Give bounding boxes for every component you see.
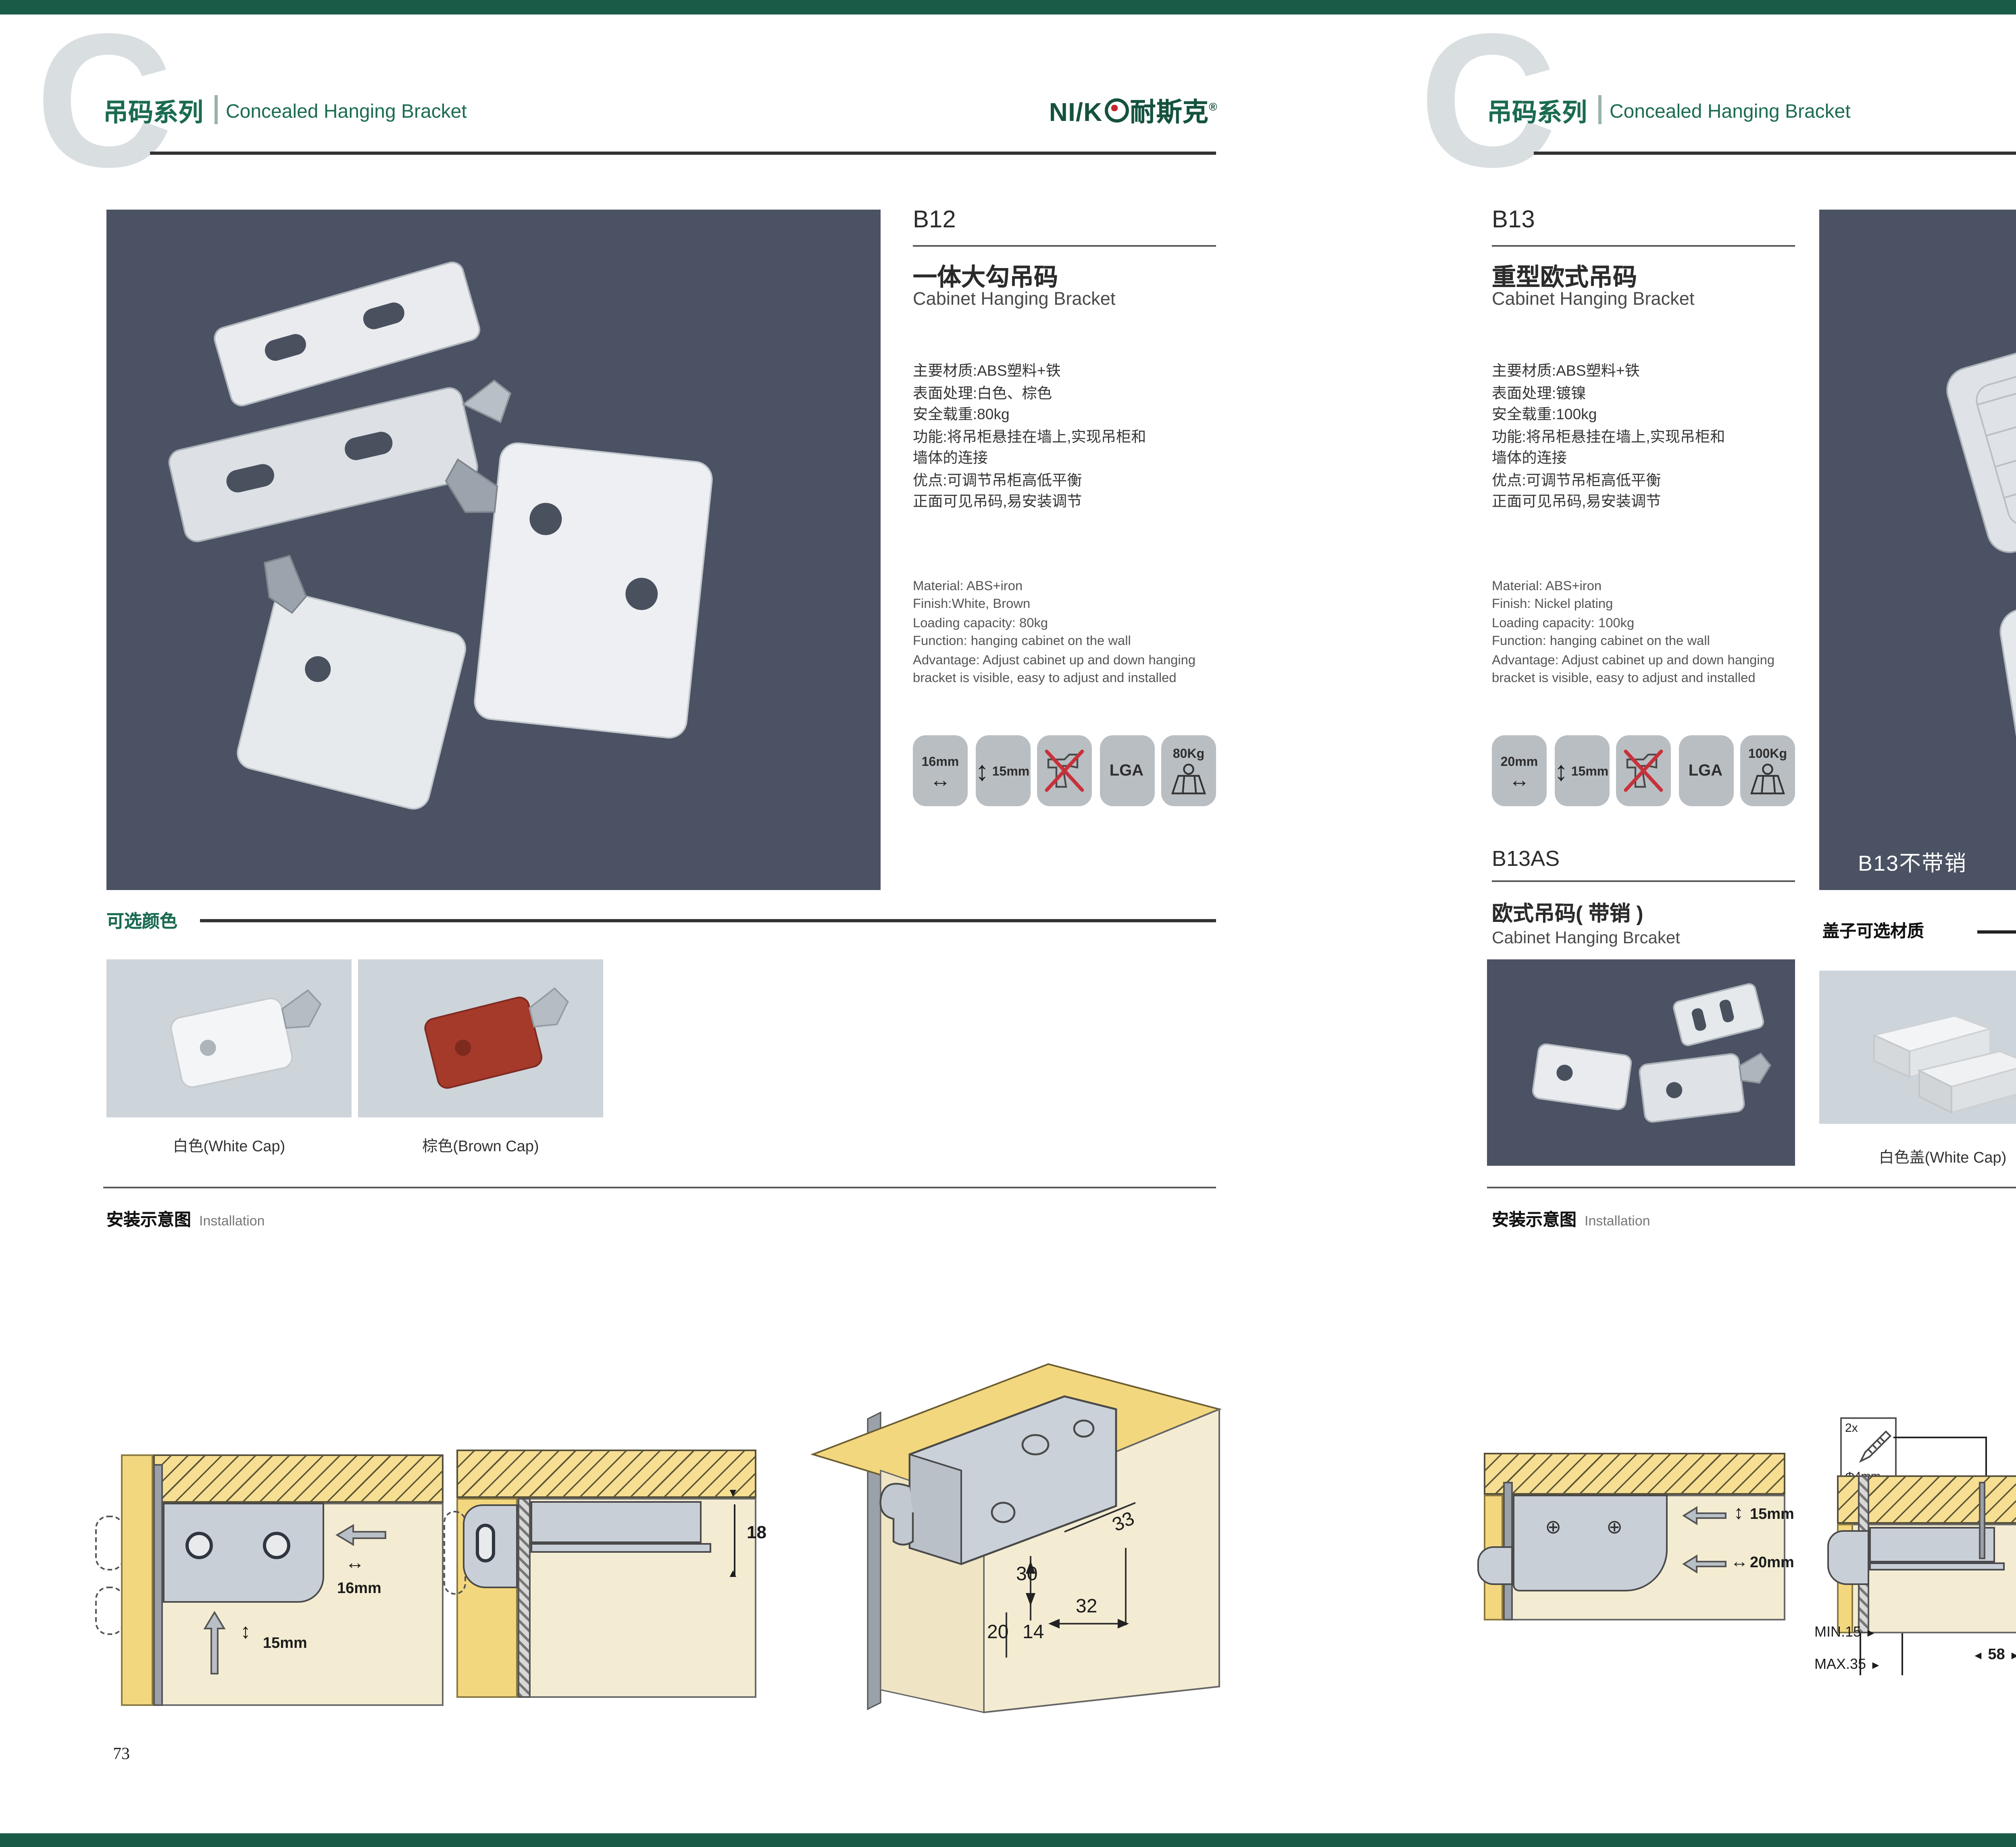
dim-15mm: 15mm	[1750, 1506, 1794, 1524]
hook-slot	[476, 1524, 495, 1562]
dim-line	[1901, 1633, 1903, 1675]
spec-line: bracket is visible, easy to adjust and i…	[1492, 669, 1814, 688]
dashed-hook-outline	[95, 1516, 124, 1570]
spec-line: 表面处理:白色、棕色	[913, 383, 1227, 405]
spec-line: 墙体的连接	[1492, 448, 1806, 470]
arrow-up-icon: ▲	[727, 1569, 739, 1580]
load-weight-icon	[1166, 763, 1211, 795]
brand-logo-left: NI/K耐斯克®	[968, 90, 1218, 129]
vertical-arrow-icon: ↕	[1554, 762, 1568, 780]
spec-line: 墙体的连接	[913, 448, 1227, 470]
product-name-cn-b12: 一体大勾吊码	[913, 260, 1058, 293]
dim-32: 32	[1076, 1595, 1097, 1617]
caption-brown-cap: 棕色(Brown Cap)	[358, 1134, 603, 1156]
diagram-section-screws: 2x Φ4mm ▼ ▲ 18 MIN.15 ► MAX.35 ► ◄ 58 ►	[1837, 1404, 2016, 1680]
product-name-en-b13as: Cabinet Hanging Brcaket	[1492, 929, 1680, 948]
horizontal-arrow-icon: ↔	[345, 1551, 364, 1574]
diagram-cabinet-3d-left: 33 30 32 20 14	[810, 1354, 1224, 1717]
vertical-arrow-icon: ↕	[1734, 1501, 1743, 1524]
install-title-cn: 安装示意图	[106, 1211, 191, 1230]
colors-rule	[200, 919, 1216, 922]
spec-line: Material: ABS+iron	[1492, 577, 1814, 596]
drill-bit-icon	[202, 1609, 227, 1677]
diagram-bracket-front: ⊕ ⊕ ↕ 15mm ↔ 20mm	[1484, 1453, 1798, 1620]
code-rule-b13	[1492, 245, 1795, 248]
header-divider-right	[1598, 95, 1601, 124]
rail-bar-shape	[1869, 1527, 1995, 1562]
spec-line: Function: hanging cabinet on the wall	[1492, 632, 1814, 651]
load-weight-icon	[1745, 763, 1790, 795]
screw-icon: ⊕	[1606, 1517, 1622, 1537]
cabinet-top-hatched	[456, 1450, 756, 1498]
rail-bar-shape	[531, 1501, 702, 1543]
diagram-wall-mount-2: ▼ ▲ 18	[456, 1440, 779, 1708]
series-title-en-left: Concealed Hanging Bracket	[226, 100, 467, 123]
arrow-right-icon: ►	[2009, 1651, 2016, 1662]
spec-line: 正面可见吊码,易安装调节	[1492, 492, 1806, 514]
drill-bit-icon	[1681, 1553, 1729, 1575]
screw-channel	[518, 1498, 531, 1698]
page-number-left: 73	[113, 1746, 130, 1764]
code-rule-b13as	[1492, 880, 1795, 883]
product-name-cn-b13: 重型欧式吊码	[1492, 260, 1637, 293]
badge-lga-label: LGA	[1110, 762, 1143, 780]
spec-line: Finish:White, Brown	[913, 596, 1235, 614]
top-green-bar	[0, 0, 2016, 14]
spec-line: Loading capacity: 80kg	[913, 614, 1235, 632]
product-name-en-b13: Cabinet Hanging Bracket	[1492, 290, 1694, 310]
badge-height: ↕ 15mm	[975, 735, 1030, 806]
series-title-cn-left: 吊码系列	[103, 94, 203, 129]
cabinet-top-hatched	[153, 1454, 444, 1503]
drill-bit-icon	[1681, 1504, 1729, 1527]
spec-line: Loading capacity: 100kg	[1492, 614, 1814, 632]
badge-width: 16mm ↔	[913, 735, 968, 806]
dim-line	[734, 1504, 735, 1575]
screw-shape	[1979, 1482, 1985, 1559]
spec-line: Material: ABS+iron	[913, 577, 1235, 596]
badge-load-label: 80Kg	[1173, 747, 1204, 761]
hook-shape	[1477, 1546, 1513, 1585]
badge-no-drill	[1037, 735, 1092, 806]
spec-line: 功能:将吊柜悬挂在墙上,实现吊柜和	[1492, 426, 1806, 448]
logo-cn: 耐斯克	[1130, 100, 1209, 127]
product-name-en-b12: Cabinet Hanging Bracket	[913, 290, 1115, 310]
spec-line: Finish: Nickel plating	[1492, 596, 1814, 614]
no-drill-icon	[1622, 747, 1664, 795]
vertical-arrow-icon: ↕	[240, 1619, 251, 1643]
arrow-left-icon: ◄	[1972, 1651, 1984, 1662]
logo-reg: ®	[1209, 103, 1218, 114]
logo-o-icon	[1104, 98, 1129, 123]
white-cap-illustration	[106, 959, 352, 1117]
catalog-canvas: C 吊码系列 Concealed Hanging Bracket NI/K耐斯克…	[0, 0, 2016, 1847]
spec-line: Function: hanging cabinet on the wall	[913, 632, 1235, 651]
screw-icon	[1855, 1429, 1893, 1464]
vertical-arrow-icon: ↕	[975, 762, 989, 780]
spec-line: 主要材质:ABS塑料+铁	[913, 361, 1227, 383]
product-name-cn-b13as: 欧式吊码( 带销 )	[1492, 896, 1643, 927]
hook-shape	[1827, 1530, 1869, 1585]
colors-section-title: 可选颜色	[106, 908, 177, 934]
spec-line: Advantage: Adjust cabinet up and down ha…	[1492, 651, 1814, 670]
wall-panel-shape	[121, 1454, 153, 1706]
bracket-shape	[1513, 1495, 1668, 1591]
diagram-wall-mount-1: ↔ 16mm ↕ 15mm	[121, 1432, 444, 1709]
photo-label-b13-no-pin: B13不带销	[1858, 845, 1967, 877]
dim-20mm: 20mm	[1750, 1554, 1794, 1572]
bracket-hole	[263, 1532, 290, 1559]
badge-height-label: 15mm	[992, 763, 1030, 778]
color-swatch-brown	[358, 959, 603, 1117]
arrow-down-icon: ▼	[727, 1488, 739, 1500]
bracket-hole	[185, 1532, 213, 1559]
badge-height-label: 15mm	[1571, 763, 1609, 778]
product-photo-b12-illustration	[106, 210, 881, 890]
logo-red-dot-icon	[1111, 106, 1117, 111]
spec-line: 优点:可调节吊柜高低平衡	[1492, 470, 1806, 492]
specs-cn-b13: 主要材质:ABS塑料+铁 表面处理:镀镍 安全载重:100kg 功能:将吊柜悬挂…	[1492, 361, 1806, 514]
rail-lip-shape	[531, 1543, 711, 1553]
badge-load-label: 100Kg	[1748, 747, 1787, 761]
badge-lga-label: LGA	[1689, 762, 1722, 780]
cabinet-3d-illustration: 33 30 32 20 14	[810, 1354, 1224, 1717]
spec-line: 表面处理:镀镍	[1492, 383, 1806, 405]
badge-load: 100Kg	[1740, 735, 1795, 806]
series-title-cn-right: 吊码系列	[1487, 94, 1587, 129]
dim-15mm: 15mm	[263, 1635, 307, 1653]
install-title-right: 安装示意图Installation	[1492, 1208, 1650, 1232]
dim-18: 18	[747, 1524, 766, 1543]
dim-30: 30	[1016, 1563, 1037, 1585]
install-divider-left	[103, 1187, 1216, 1188]
product-code-b13as: B13AS	[1492, 847, 1560, 871]
dim-20: 20	[987, 1621, 1008, 1643]
caption-white-cap: 白色(White Cap)	[106, 1134, 352, 1156]
white-cap-box-illustration	[1819, 971, 2016, 1124]
product-photo-b13-illustration	[1819, 210, 2016, 890]
dim-min15: MIN.15 ►	[1814, 1624, 1876, 1640]
spec-line: 功能:将吊柜悬挂在墙上,实现吊柜和	[913, 426, 1227, 448]
product-code-b12: B12	[913, 206, 956, 234]
product-code-b13: B13	[1492, 206, 1535, 234]
badge-load: 80Kg	[1161, 735, 1216, 806]
product-photo-b13as	[1487, 959, 1795, 1166]
logo-latin: NI/K	[1049, 100, 1103, 127]
catalog-spread: C 吊码系列 Concealed Hanging Bracket NI/K耐斯克…	[0, 0, 2016, 1847]
arrow-right-icon: ►	[1870, 1661, 1881, 1672]
badge-lga: LGA	[1678, 735, 1733, 806]
cap-swatch-white	[1819, 971, 2016, 1124]
cabinet-top-hatched	[1484, 1453, 1785, 1495]
install-title-cn: 安装示意图	[1492, 1211, 1577, 1230]
caps-rule	[1977, 930, 2016, 933]
brown-cap-illustration	[358, 959, 603, 1117]
color-swatch-white	[106, 959, 352, 1117]
spec-line: 正面可见吊码,易安装调节	[913, 492, 1227, 514]
back-panel-strip	[153, 1464, 163, 1706]
spec-line: 安全载重:100kg	[1492, 405, 1806, 426]
badge-height: ↕ 15mm	[1554, 735, 1609, 806]
product-photo-b13: B13不带销	[1819, 210, 2016, 890]
badge-width-label: 16mm	[922, 754, 959, 768]
drill-bit-icon	[334, 1522, 392, 1548]
bottom-green-bar	[0, 1833, 2016, 1847]
install-title-left: 安装示意图Installation	[106, 1208, 265, 1232]
specs-cn-b12: 主要材质:ABS塑料+铁 表面处理:白色、棕色 安全载重:80kg 功能:将吊柜…	[913, 361, 1227, 514]
install-title-en: Installation	[1585, 1213, 1650, 1229]
bracket-shape	[163, 1503, 324, 1603]
specs-en-b13: Material: ABS+iron Finish: Nickel platin…	[1492, 577, 1814, 688]
dim-14: 14	[1023, 1621, 1044, 1643]
dim-58: ◄ 58 ►	[1972, 1646, 2016, 1664]
caption-white-cover: 白色盖(White Cap)	[1819, 1145, 2016, 1167]
spec-line: 优点:可调节吊柜高低平衡	[913, 470, 1227, 492]
badge-no-drill	[1616, 735, 1671, 806]
dashed-hook-outline	[95, 1587, 124, 1635]
arrow-right-icon: ►	[1865, 1629, 1876, 1640]
badge-lga: LGA	[1099, 735, 1154, 806]
spec-line: Advantage: Adjust cabinet up and down ha…	[913, 651, 1235, 670]
header-divider-left	[215, 95, 217, 124]
dim-max35: MAX.35 ►	[1814, 1656, 1881, 1672]
badge-width-label: 20mm	[1501, 754, 1538, 768]
caps-section-title: 盖子可选材质	[1822, 919, 1924, 943]
spec-line: 主要材质:ABS塑料+铁	[1492, 361, 1806, 383]
product-photo-b13as-illustration	[1487, 959, 1795, 1166]
spec-line: bracket is visible, easy to adjust and i…	[913, 669, 1235, 688]
dim-16mm: 16mm	[337, 1580, 381, 1598]
specs-en-b12: Material: ABS+iron Finish:White, Brown L…	[913, 577, 1235, 688]
spec-line: 安全载重:80kg	[913, 405, 1227, 426]
code-rule-b12	[913, 245, 1216, 248]
badge-width: 20mm ↔	[1492, 735, 1547, 806]
product-photo-b12	[106, 210, 881, 890]
leader-line	[1893, 1437, 1985, 1438]
install-title-en: Installation	[199, 1213, 265, 1229]
install-divider-right	[1487, 1187, 2016, 1188]
horizontal-arrow-icon: ↔	[1509, 770, 1530, 788]
header-rule-left	[150, 152, 1216, 155]
rail-lip-shape	[1869, 1562, 2005, 1570]
screw-icon: ⊕	[1545, 1517, 1561, 1537]
series-title-en-right: Concealed Hanging Bracket	[1610, 100, 1851, 123]
horizontal-arrow-icon: ↔	[1731, 1553, 1748, 1572]
horizontal-arrow-icon: ↔	[930, 770, 951, 788]
header-rule-right	[1534, 152, 2016, 155]
no-drill-icon	[1043, 747, 1085, 795]
